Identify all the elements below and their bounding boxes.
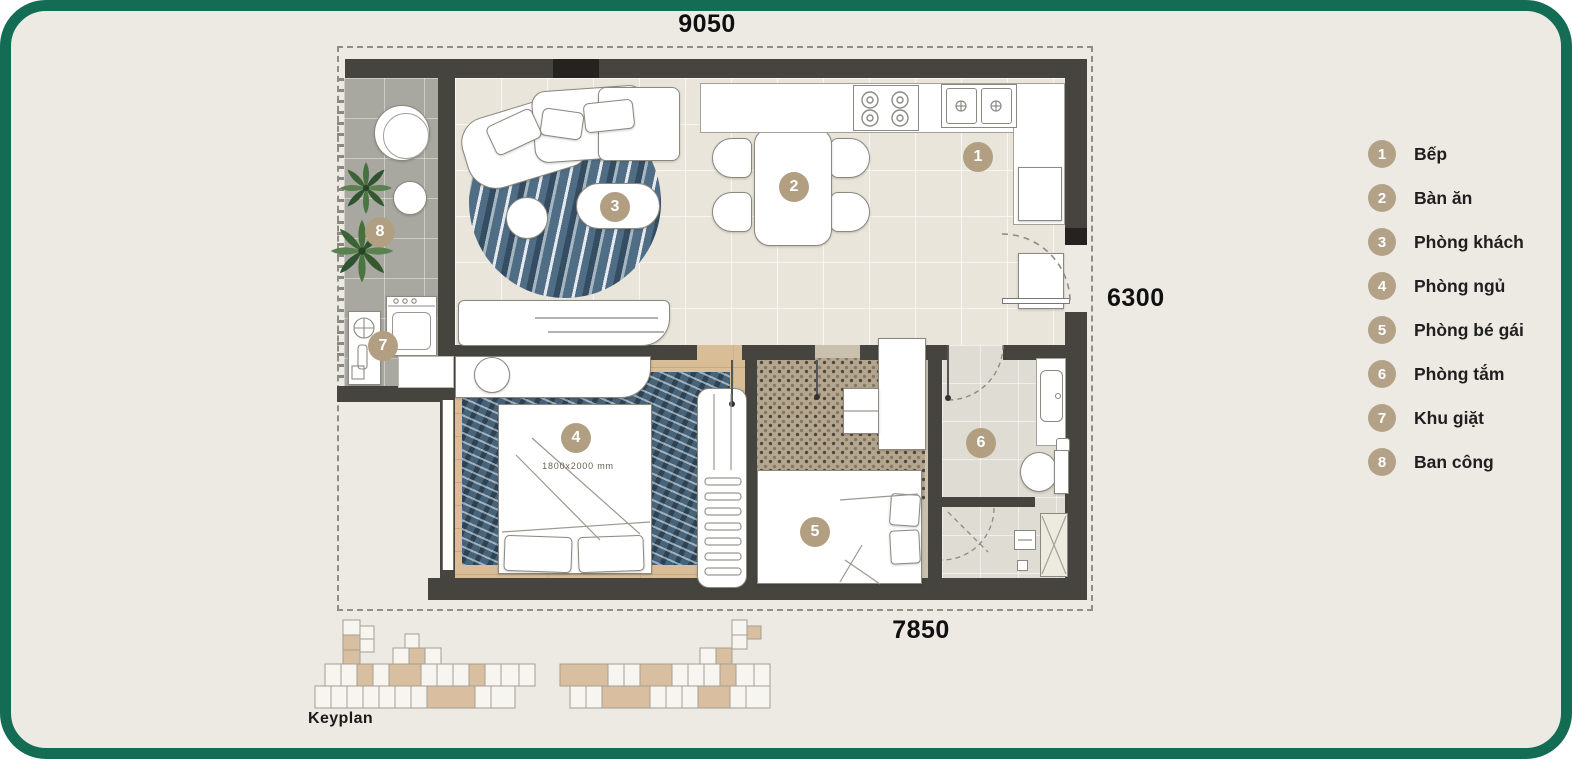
room-badge-dining: 2 — [779, 172, 809, 202]
sink-basin — [946, 88, 977, 124]
legend-item-bedroom: 4 Phòng ngủ — [1368, 272, 1524, 300]
wall-laundry-bottom — [337, 386, 455, 402]
bathroom-sink — [1040, 370, 1063, 422]
floor-drain — [1017, 560, 1028, 571]
legend-item-living: 3 Phòng khách — [1368, 228, 1524, 256]
room-legend: 1 Bếp 2 Bàn ăn 3 Phòng khách 4 Phòng ngủ… — [1368, 140, 1524, 492]
legend-label: Bếp — [1414, 144, 1447, 165]
legend-label: Ban công — [1414, 452, 1494, 473]
legend-number-badge: 7 — [1368, 404, 1396, 432]
wall-column — [553, 59, 599, 78]
room-badge-kids-room: 5 — [800, 517, 830, 547]
wall-kids-bath — [928, 345, 942, 578]
balcony-chair-cushion — [383, 113, 429, 159]
dining-chair — [712, 192, 752, 232]
sofa-pillow — [539, 107, 584, 141]
balcony-side-table — [393, 181, 427, 215]
sink-basin — [981, 88, 1012, 124]
legend-number-badge: 6 — [1368, 360, 1396, 388]
dining-chair — [830, 138, 870, 178]
legend-label: Phòng ngủ — [1414, 276, 1505, 297]
bed-pillow — [577, 535, 644, 573]
wc-sink — [1014, 530, 1036, 550]
kids-bed — [757, 470, 922, 584]
legend-number-badge: 4 — [1368, 272, 1396, 300]
dressing-stool — [474, 357, 510, 393]
bed-pillow — [503, 535, 572, 573]
refrigerator — [1018, 167, 1062, 221]
dimension-bottom: 7850 — [831, 616, 1011, 645]
legend-item-kitchen: 1 Bếp — [1368, 140, 1524, 168]
wall-top — [345, 59, 1087, 78]
legend-label: Phòng khách — [1414, 232, 1524, 253]
coffee-table-round — [506, 197, 548, 239]
tv-console — [458, 300, 670, 346]
keyplan-label: Keyplan — [308, 710, 373, 728]
sofa-pillow — [583, 98, 636, 133]
toilet-tank — [1054, 450, 1069, 494]
room-badge-kitchen: 1 — [963, 142, 993, 172]
room-badge-bathroom: 6 — [966, 428, 996, 458]
dining-chair — [830, 192, 870, 232]
kids-desk — [878, 338, 926, 450]
legend-label: Phòng bé gái — [1414, 320, 1524, 341]
room-badge-balcony: 8 — [365, 217, 395, 247]
legend-label: Bàn ăn — [1414, 188, 1472, 209]
room-badge-laundry: 7 — [368, 331, 398, 361]
toilet-bowl — [1020, 452, 1058, 492]
bedroom-window — [442, 400, 454, 570]
dimension-right: 6300 — [1107, 284, 1165, 313]
wall-bath-divider — [928, 497, 1035, 507]
wall-column — [1065, 228, 1087, 245]
legend-number-badge: 1 — [1368, 140, 1396, 168]
floorplan-brochure: 9050 6300 7850 — [0, 0, 1572, 759]
legend-item-kids-room: 5 Phòng bé gái — [1368, 316, 1524, 344]
kids-shelf — [843, 388, 879, 434]
legend-label: Khu giặt — [1414, 408, 1484, 429]
legend-number-badge: 8 — [1368, 448, 1396, 476]
bed-size-label: 1800x2000 mm — [508, 461, 648, 471]
legend-item-dining: 2 Bàn ăn — [1368, 184, 1524, 212]
room-badge-living: 3 — [600, 192, 630, 222]
legend-number-badge: 3 — [1368, 228, 1396, 256]
legend-item-bathroom: 6 Phòng tắm — [1368, 360, 1524, 388]
kids-bed-pillow — [889, 493, 921, 527]
legend-number-badge: 2 — [1368, 184, 1396, 212]
wall-right-upper — [1065, 59, 1087, 245]
room-badge-bedroom: 4 — [561, 423, 591, 453]
legend-number-badge: 5 — [1368, 316, 1396, 344]
kids-bed-pillow — [889, 529, 921, 565]
shower-tray — [1040, 513, 1068, 577]
wardrobe — [697, 388, 747, 588]
legend-item-balcony: 8 Ban công — [1368, 448, 1524, 476]
laundry-niche — [398, 356, 454, 388]
stove-cooktop — [853, 85, 919, 131]
entry-door-leaf — [1002, 298, 1070, 304]
legend-item-laundry: 7 Khu giặt — [1368, 404, 1524, 432]
dining-chair — [712, 138, 752, 178]
legend-label: Phòng tắm — [1414, 364, 1504, 385]
dimension-top: 9050 — [617, 10, 797, 39]
